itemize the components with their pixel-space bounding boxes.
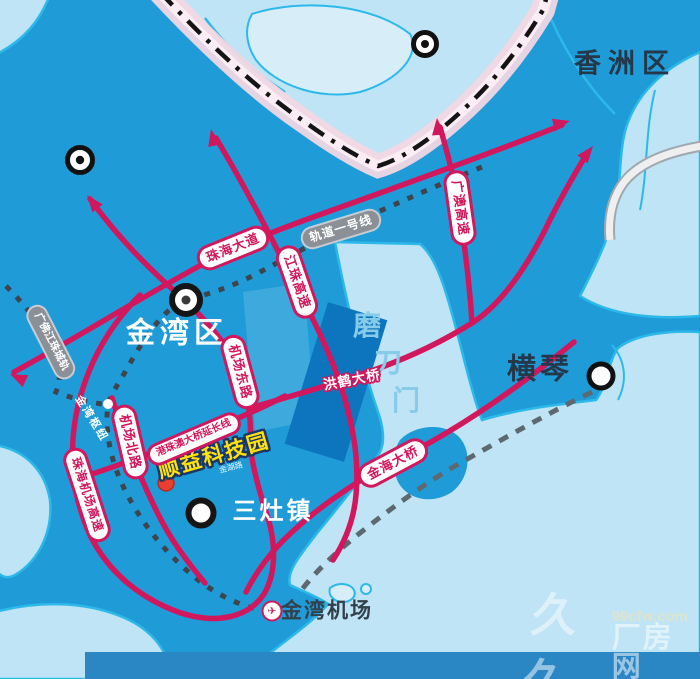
interchange-marker-dot xyxy=(182,296,191,305)
region-label-hengqin: 横琴 xyxy=(507,356,573,385)
bottom-water-strip xyxy=(85,652,700,679)
jinwan-hub-dot xyxy=(103,399,113,409)
region-label-jinwan: 金湾区 xyxy=(126,320,228,349)
islet xyxy=(361,584,371,594)
airplane-icon: ✈ xyxy=(262,601,283,622)
hengqin-marker xyxy=(589,364,613,388)
region-label-xiangzhou: 香洲区 xyxy=(574,51,676,78)
town-label-sanzao: 三灶镇 xyxy=(233,500,314,524)
sanzao-marker xyxy=(189,501,214,526)
waterway-label-modaomen-char3: 门 xyxy=(392,387,420,415)
poi-label-jinwan-airport: 金湾机场 xyxy=(281,601,373,622)
map-canvas: 香洲区 金湾区 横琴 三灶镇 磨 刀 门 珠海大道 江珠高速 广澳高速 机场东路… xyxy=(0,0,700,679)
waterway-label-modaomen-char1: 磨 xyxy=(353,312,381,340)
map-geography xyxy=(0,0,700,679)
town-marker-dot xyxy=(421,40,429,48)
town-marker-dot xyxy=(76,156,84,164)
